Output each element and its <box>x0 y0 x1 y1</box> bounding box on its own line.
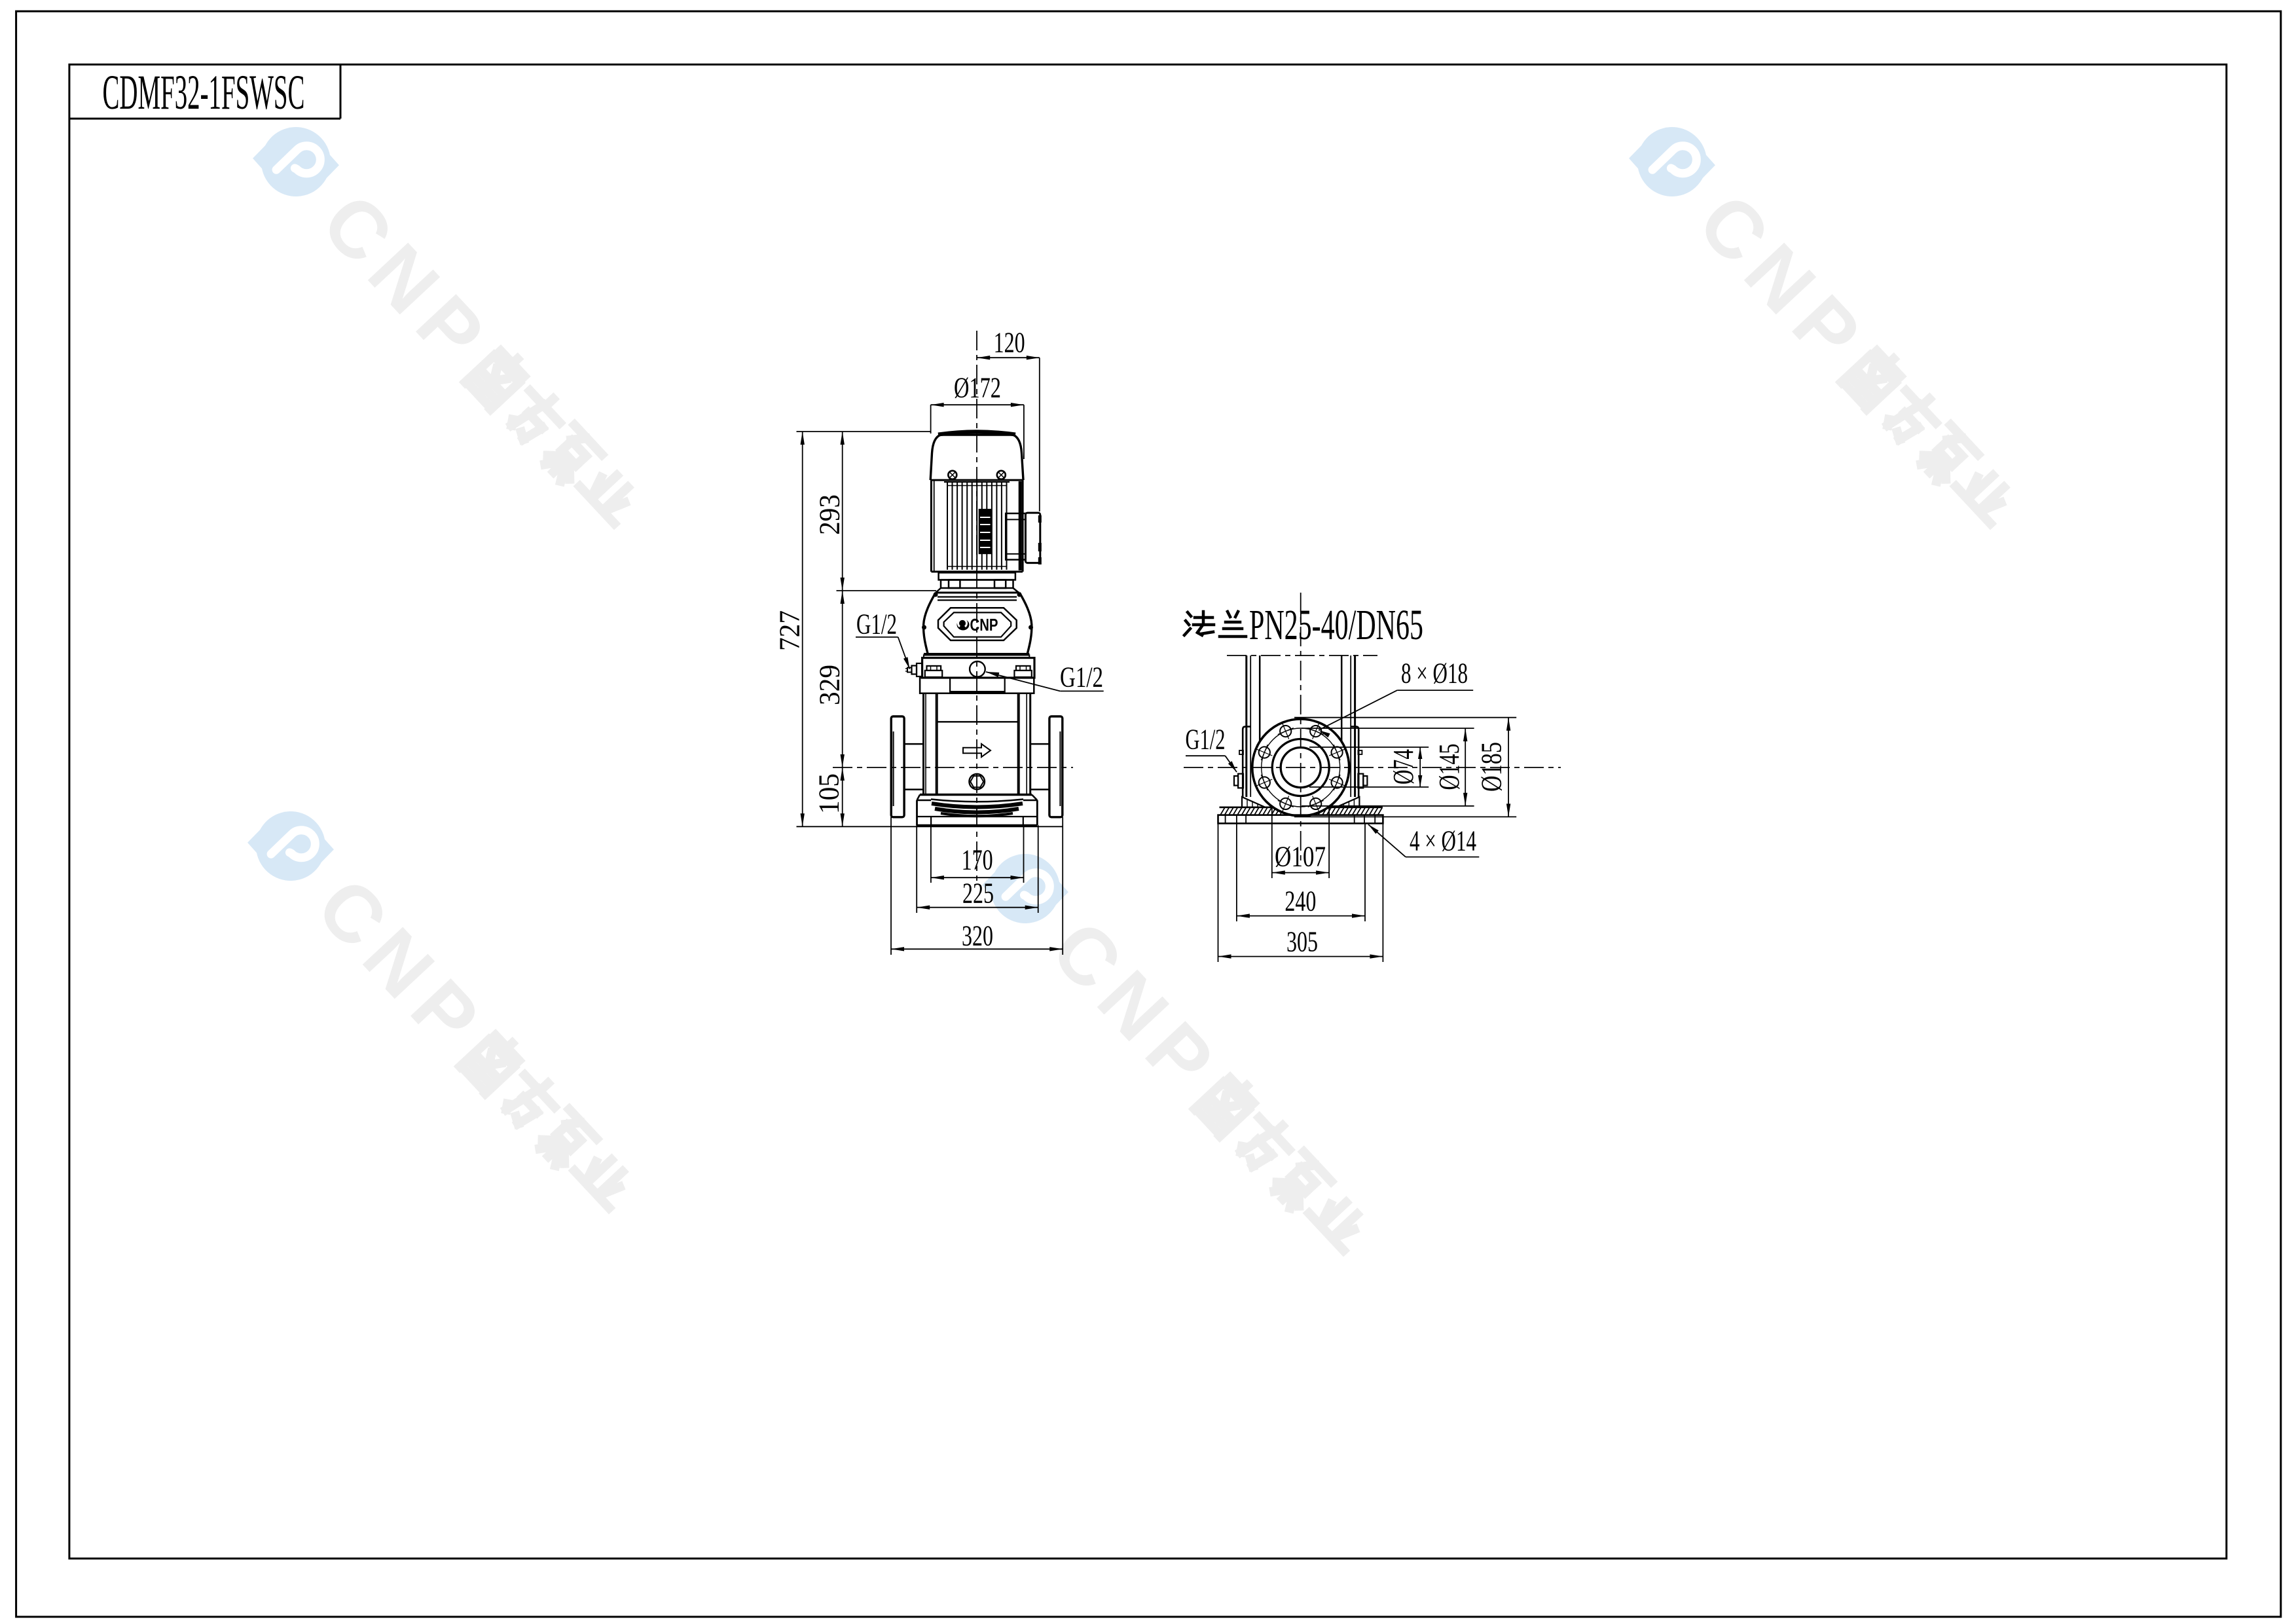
svg-text:CDMF32-1FSWSC: CDMF32-1FSWSC <box>103 65 305 120</box>
svg-text:Ø145: Ø145 <box>1433 744 1465 790</box>
svg-text:305: 305 <box>1286 926 1318 958</box>
svg-text:G1/2: G1/2 <box>1186 724 1226 756</box>
svg-text:8 × Ø18: 8 × Ø18 <box>1401 657 1468 690</box>
svg-text:PN25-40/DN65: PN25-40/DN65 <box>1249 601 1423 649</box>
svg-text:Ø172: Ø172 <box>954 372 1001 404</box>
svg-text:293: 293 <box>814 494 846 535</box>
svg-text:320: 320 <box>962 920 993 952</box>
svg-text:Ø185: Ø185 <box>1476 742 1508 792</box>
svg-text:727: 727 <box>774 610 806 651</box>
svg-text:329: 329 <box>814 665 846 705</box>
svg-text:Ø74: Ø74 <box>1387 749 1419 784</box>
svg-text:Ø107: Ø107 <box>1275 841 1326 873</box>
svg-text:120: 120 <box>994 327 1025 359</box>
svg-text:G1/2: G1/2 <box>1060 661 1103 693</box>
svg-text:G1/2: G1/2 <box>856 608 897 640</box>
svg-text:170: 170 <box>962 844 993 876</box>
svg-text:CNP: CNP <box>970 615 998 635</box>
svg-text:105: 105 <box>813 773 845 814</box>
svg-text:4 × Ø14: 4 × Ø14 <box>1410 825 1476 857</box>
svg-text:240: 240 <box>1285 885 1316 917</box>
svg-text:225: 225 <box>962 877 994 910</box>
